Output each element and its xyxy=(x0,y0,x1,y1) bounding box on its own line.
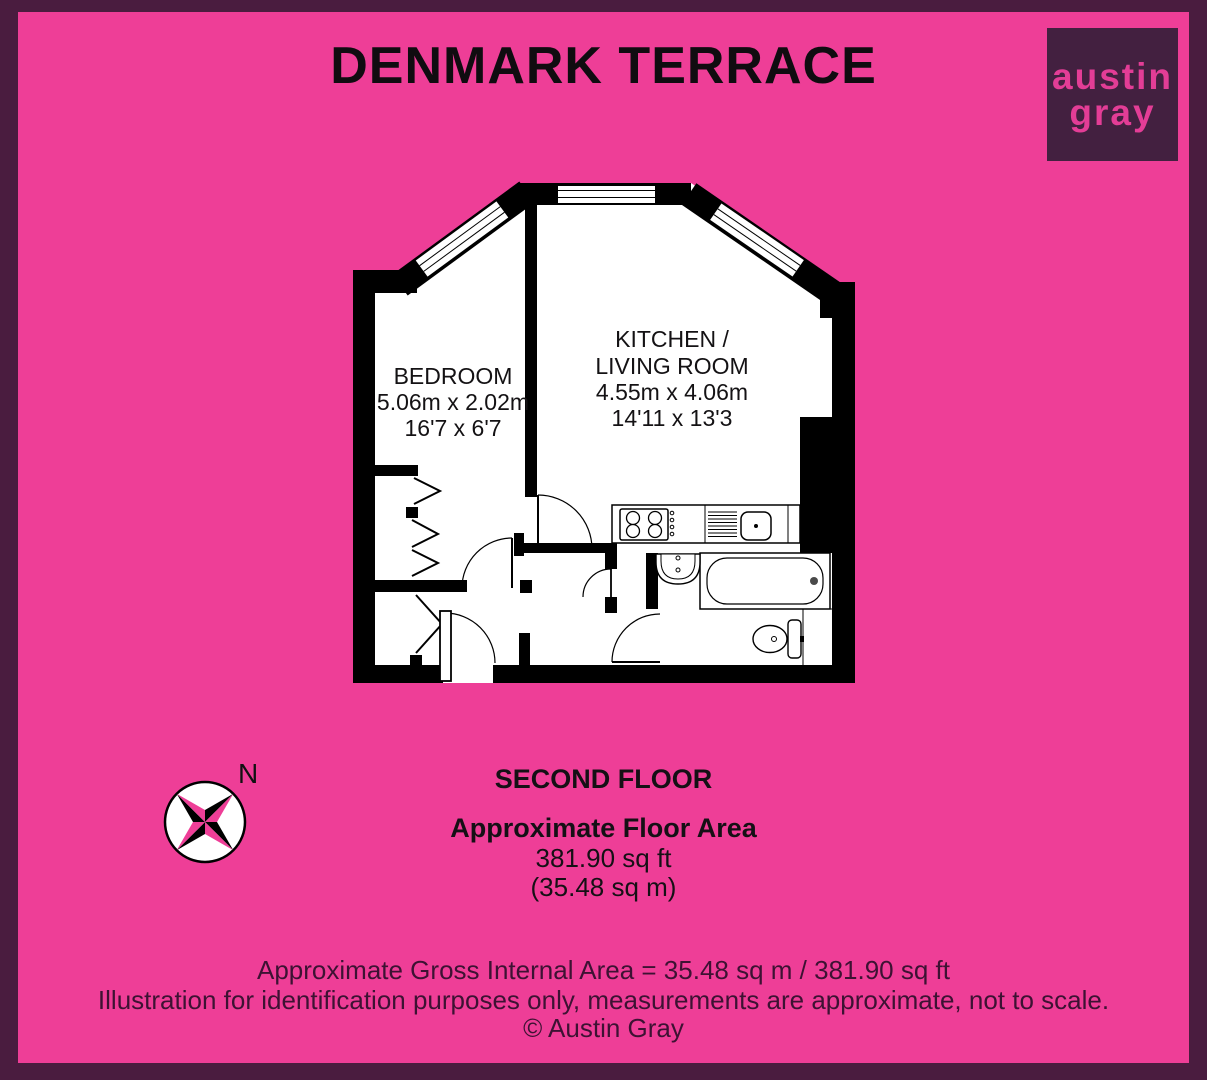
window-top-centre xyxy=(558,186,655,203)
frame-bottom xyxy=(0,1063,1207,1080)
frame-top xyxy=(0,0,1207,12)
floorplan-page: DENMARK TERRACE austin gray xyxy=(0,0,1207,1080)
floor-plan-drawing: BEDROOM 5.06m x 2.02m 16'7 x 6'7 KITCHEN… xyxy=(340,160,870,700)
footer-disclaimer: Illustration for identification purposes… xyxy=(0,985,1207,1016)
kitchen-label-line1: KITCHEN / xyxy=(615,326,729,352)
frame-left xyxy=(0,0,18,1080)
bedroom-label: BEDROOM xyxy=(394,363,513,389)
agency-logo: austin gray xyxy=(1047,28,1178,161)
area-sqm: (35.48 sq m) xyxy=(0,872,1207,903)
area-heading: Approximate Floor Area xyxy=(0,813,1207,844)
hob-icon xyxy=(620,509,674,540)
basin-icon xyxy=(656,554,700,584)
bedroom-size-imperial: 16'7 x 6'7 xyxy=(404,415,501,441)
frame-right xyxy=(1189,0,1207,1080)
page-title: DENMARK TERRACE xyxy=(0,36,1207,96)
area-sqft: 381.90 sq ft xyxy=(0,843,1207,874)
kitchen-label-line2: LIVING ROOM xyxy=(595,353,748,379)
footer-gross-area: Approximate Gross Internal Area = 35.48 … xyxy=(0,955,1207,986)
bedroom-size-metric: 5.06m x 2.02m xyxy=(377,389,529,415)
floor-label: SECOND FLOOR xyxy=(0,764,1207,795)
logo-word-gray: gray xyxy=(1069,95,1155,130)
footer-copyright: © Austin Gray xyxy=(0,1013,1207,1044)
kitchen-size-imperial: 14'11 x 13'3 xyxy=(612,405,733,431)
bath-icon xyxy=(700,553,830,609)
kitchen-size-metric: 4.55m x 4.06m xyxy=(596,379,748,405)
logo-word-austin: austin xyxy=(1052,59,1173,94)
